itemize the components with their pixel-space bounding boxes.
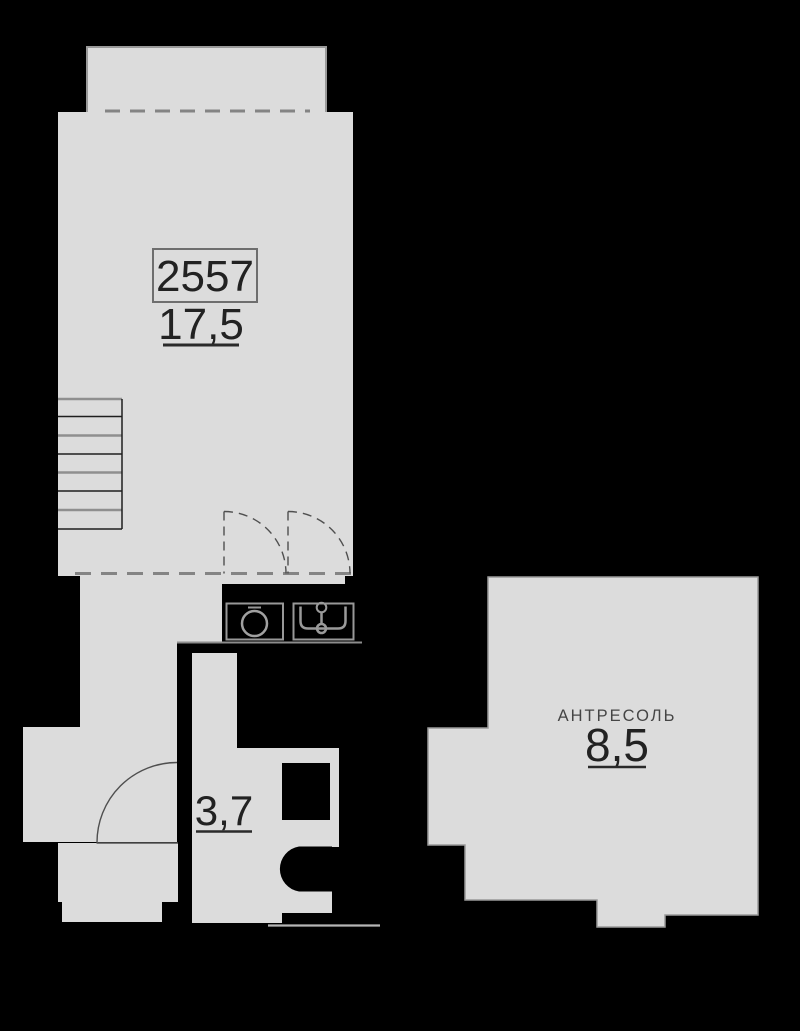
floor-plan: 2557 17,5 3,7 АНТРЕСОЛЬ 8,5 [0,0,800,1031]
hallway-floor-upper [80,643,177,729]
bath-floor-strip [330,748,339,847]
corridor-floor [80,584,222,643]
kitchen-counter-block [222,584,362,643]
mezzanine-area: 8,5 [585,719,649,771]
hall-room-area-label: 3,7 [195,787,253,834]
closet-floor-lower [62,843,162,922]
main-room-floor-band [80,574,345,584]
balcony-floor [87,47,326,112]
toilet-icon [280,847,332,892]
main-room-area-label: 17,5 [158,300,244,349]
main-room-area: 17,5 [158,300,244,349]
hallway-floor-wide [23,727,177,842]
unit-number: 2557 [156,252,254,301]
bath-floor-band [192,748,339,763]
hall-room-area: 3,7 [195,787,253,834]
unit-number-box: 2557 [153,249,257,302]
floor-plan-canvas: 2557 17,5 3,7 АНТРЕСОЛЬ 8,5 [0,0,800,1031]
